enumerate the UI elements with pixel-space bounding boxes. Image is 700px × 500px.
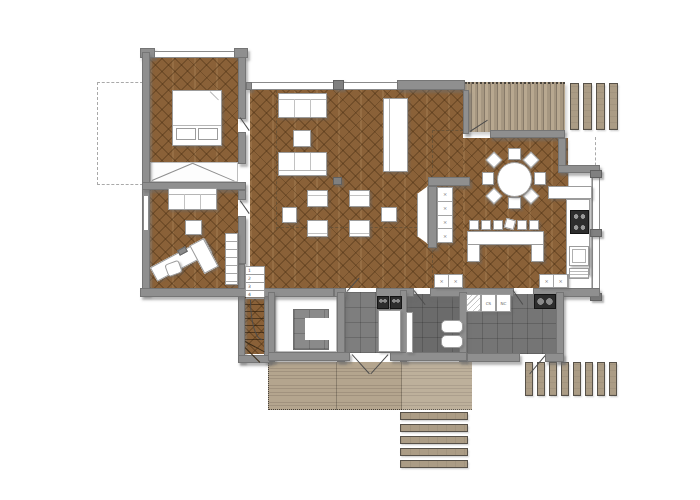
east-facade-post (590, 170, 602, 178)
cooktop (570, 210, 589, 234)
office-east-wall-lower (238, 216, 246, 264)
sofa-south (278, 152, 327, 176)
southeast-path-plank (573, 362, 581, 396)
bedroom-door-leaf (240, 117, 250, 131)
stair-upper-steps: 1 2 3 4 (245, 266, 265, 297)
kitchen-island-leg-east (531, 244, 544, 262)
pantry-angled-counter (417, 186, 428, 244)
dining-kitchen-floor (463, 138, 568, 288)
southeast-path-plank (561, 362, 569, 396)
east-facade-post (590, 229, 602, 237)
sofa-cushion-line (184, 194, 185, 209)
bed (172, 90, 222, 146)
utility-cooktop (534, 294, 556, 309)
south-wall-east (467, 353, 520, 362)
southeast-path-plank (549, 362, 557, 396)
bar-stool (481, 220, 491, 230)
cabinet-cell: × (540, 275, 554, 287)
bed-pillow (176, 128, 196, 140)
armchair (349, 190, 370, 207)
sofa-cushion-line (200, 194, 201, 209)
office-south-wall (140, 288, 246, 297)
dashed-zone-line-north (432, 130, 463, 131)
armchair-line (350, 233, 369, 234)
cabinet-cell: × (554, 275, 567, 287)
bed-pillow (198, 128, 218, 140)
office-west-window (143, 196, 149, 230)
bathroom-basin (441, 335, 463, 348)
bedroom-east-wall-lower (238, 132, 246, 164)
southeast-path-plank (609, 362, 617, 396)
washer: CS (481, 294, 496, 312)
south-path-plank (400, 448, 468, 456)
west-exterior-wall (142, 52, 150, 295)
wc-core-notch (305, 318, 329, 340)
southeast-path-plank (585, 362, 593, 396)
bar-stool (469, 220, 479, 230)
north-facade-post (333, 80, 344, 90)
oven-inner-line (572, 249, 586, 263)
dashed-zone-line-west (276, 90, 277, 230)
kitchen-island-leg-west (467, 244, 480, 262)
office-door-leaf (240, 200, 250, 214)
tv-unit-line (389, 99, 390, 171)
living-north-window-west (252, 82, 333, 90)
south-path-plank (400, 436, 468, 444)
bed-duvet-line (173, 125, 221, 126)
floor-plan-canvas: × × × × × × × × CS NC 1 2 3 4 (0, 0, 700, 500)
utility-cabinet-door (466, 294, 481, 312)
kitchen-north-counter (548, 186, 592, 199)
kitchen-base-cabinets-west: × × (434, 274, 463, 288)
oven (569, 246, 589, 266)
sofa-north (278, 93, 327, 118)
south-path-plank (400, 412, 468, 420)
office-sofa (168, 188, 217, 210)
stair-step: 2 (246, 275, 264, 283)
stair-step: 1 (246, 267, 264, 275)
armchair (349, 220, 370, 237)
terrace-west-wall (463, 90, 469, 134)
sofa-cushion-line (294, 153, 295, 170)
office-wardrobe (225, 233, 238, 285)
entry-counter (378, 310, 401, 352)
kitchen-base-cabinets-east: × × (539, 274, 568, 288)
upper-terrace-plank (570, 83, 579, 130)
dining-chair (534, 172, 546, 185)
entry-appliance (377, 296, 389, 309)
utility-east-wall (556, 292, 564, 362)
cabinet-cell: × (435, 275, 449, 287)
dining-chair (508, 148, 521, 160)
dining-north-wall (490, 130, 565, 138)
armchair (307, 220, 328, 237)
living-north-wall (397, 80, 465, 90)
upper-terrace-plank (609, 83, 618, 130)
cabinet-cell: × (449, 275, 462, 287)
pantry-west-wall (428, 186, 437, 248)
pantry-cabinet-cell: × (438, 202, 452, 216)
side-table-east (381, 207, 397, 222)
kitchen-island-counter (467, 231, 544, 245)
south-wall-corner (545, 353, 564, 362)
armchair-line (350, 195, 369, 196)
southeast-path-plank (537, 362, 545, 396)
bathroom-basin (441, 320, 463, 333)
coffee-table-square (293, 130, 311, 147)
office-east-wall-upper (238, 190, 246, 200)
armchair (307, 190, 328, 207)
sofa-back-line (169, 194, 216, 195)
bar-stool (493, 220, 503, 230)
armchair-line (308, 195, 327, 196)
entry-appliance (390, 296, 402, 309)
deck-light-patch (402, 362, 473, 410)
south-terrace-deck (268, 362, 472, 410)
pantry-tall-cabinets: × × × × (437, 187, 453, 243)
dashed-extension-outline (97, 82, 143, 185)
sofa-cushion-line (294, 99, 295, 117)
south-wall-middle (390, 352, 467, 361)
sofa-cushion-line (310, 99, 311, 117)
stair-step: 3 (246, 283, 264, 291)
dining-table (497, 162, 532, 197)
sofa-back-line (279, 99, 326, 100)
sofa-back-line (279, 170, 326, 171)
vent-grill (569, 268, 589, 279)
dryer: NC (496, 294, 511, 312)
living-column (333, 177, 342, 185)
sofa-cushion-line (310, 153, 311, 170)
pantry-cabinet-cell: × (438, 188, 452, 202)
armchair-line (308, 233, 327, 234)
dining-chair (482, 172, 494, 185)
bedroom-east-wall-upper (238, 57, 246, 119)
bed-fold-line (210, 91, 219, 100)
southeast-path-plank (597, 362, 605, 396)
southeast-path-plank (525, 362, 533, 396)
south-path-plank (400, 424, 468, 432)
south-path-plank (400, 460, 468, 468)
upper-terrace-plank (596, 83, 605, 130)
dining-chair (508, 197, 521, 209)
shower-tray (406, 312, 413, 353)
side-table-west (282, 207, 297, 223)
bar-stool (529, 220, 539, 230)
office-side-table (185, 220, 202, 235)
tv-unit (383, 98, 408, 172)
bar-stool (517, 220, 527, 230)
upper-terrace-plank (583, 83, 592, 130)
living-north-window-east (344, 82, 397, 90)
bedroom-north-window (155, 51, 234, 58)
pantry-cabinet-cell: × (438, 216, 452, 230)
south-wall-west (268, 352, 350, 361)
deck-board-seam (336, 362, 337, 410)
pantry-north-wall (428, 177, 470, 186)
pantry-cabinet-cell: × (438, 229, 452, 242)
